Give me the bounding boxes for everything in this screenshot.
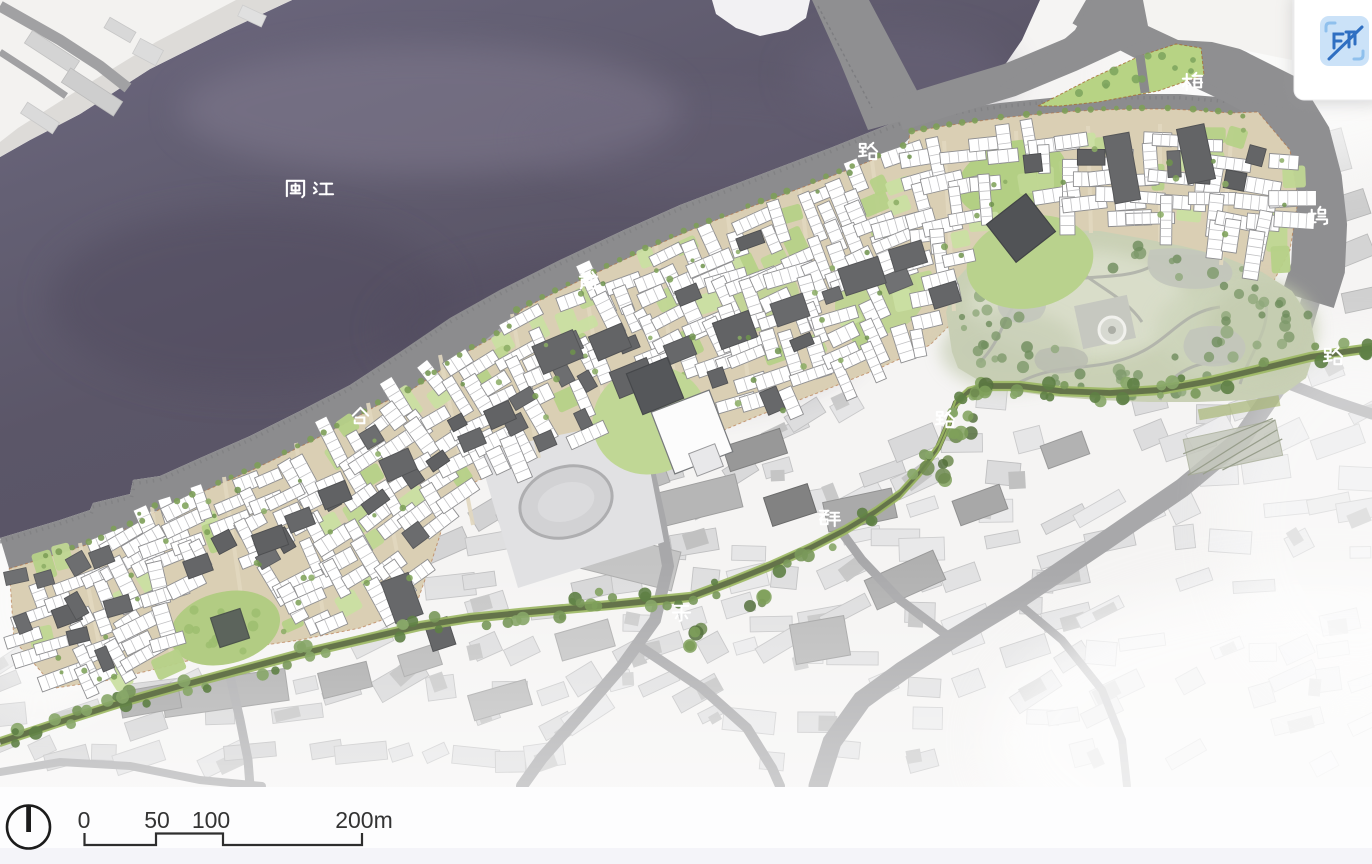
svg-text:200m: 200m [335,807,393,833]
svg-text:50: 50 [144,807,170,833]
svg-text:100: 100 [192,807,230,833]
svg-text:0: 0 [78,807,91,833]
